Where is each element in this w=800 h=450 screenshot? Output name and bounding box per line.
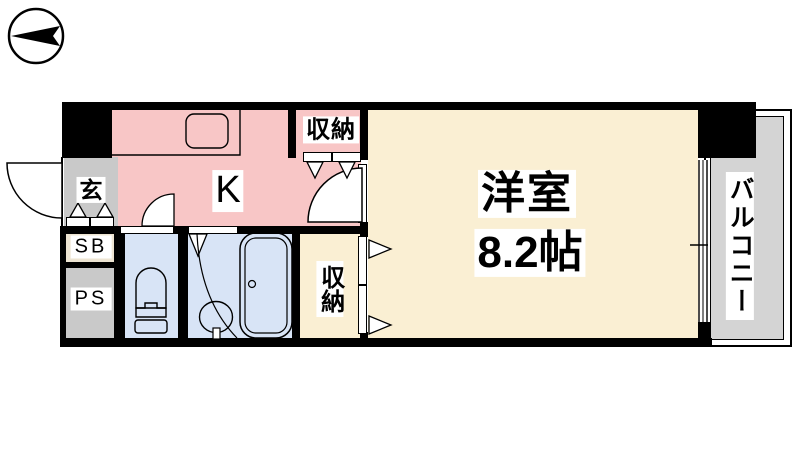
wall-bottom: [62, 338, 712, 347]
wall-window-sill: [698, 322, 710, 338]
hall-closet-label: 収納: [316, 261, 343, 317]
bathroom-area: [188, 234, 292, 338]
closet-bifold-panel-1: [358, 236, 367, 285]
wall-corner-top-right: [698, 102, 756, 158]
balcony-label: バルコニー: [726, 172, 754, 320]
bath-door-panel: [188, 226, 238, 234]
wall-top: [62, 102, 712, 110]
compass-icon: [9, 9, 63, 63]
kitchen-closet-label: 収納: [303, 116, 359, 143]
western-room-size: 8.2帖: [474, 229, 585, 277]
entrance-label: 玄: [77, 177, 106, 203]
shoe-box-door-panel-2: [90, 217, 114, 227]
wall-entry-face: [61, 157, 63, 229]
kitchen-closet-panel-1: [303, 152, 332, 162]
pipe-space-label: PS: [71, 288, 112, 311]
wall-kitchen-closet-left: [288, 110, 296, 158]
wall-column-right: [114, 226, 125, 347]
shoe-box-door-panel-1: [66, 217, 90, 227]
shoe-box-label: SB: [71, 236, 112, 259]
wall-left-lower: [60, 226, 66, 347]
western-room-area: [368, 110, 698, 338]
kitchen-closet-panel-2: [332, 152, 361, 162]
wall-bath-closet: [292, 233, 300, 338]
western-room-label: 洋室: [478, 170, 576, 218]
wall-kitchen-room-a: [360, 110, 368, 160]
wall-toilet-bath: [178, 233, 188, 338]
kitchen-label: K: [212, 170, 243, 212]
kitchen-door-leaf: [358, 164, 367, 223]
wall-corner-top-left: [62, 102, 112, 158]
toilet-area: [125, 234, 178, 338]
closet-bifold-panel-2: [358, 285, 367, 334]
wall-kitchen-room-b: [360, 222, 368, 237]
floor-plan: 玄 K 収納 SB PS 収納 洋室 8.2帖 バルコニー: [0, 0, 800, 450]
entrance-door-arc: [7, 163, 62, 218]
wall-sb-ps-divider: [62, 262, 114, 268]
toilet-door-panel: [120, 226, 174, 234]
